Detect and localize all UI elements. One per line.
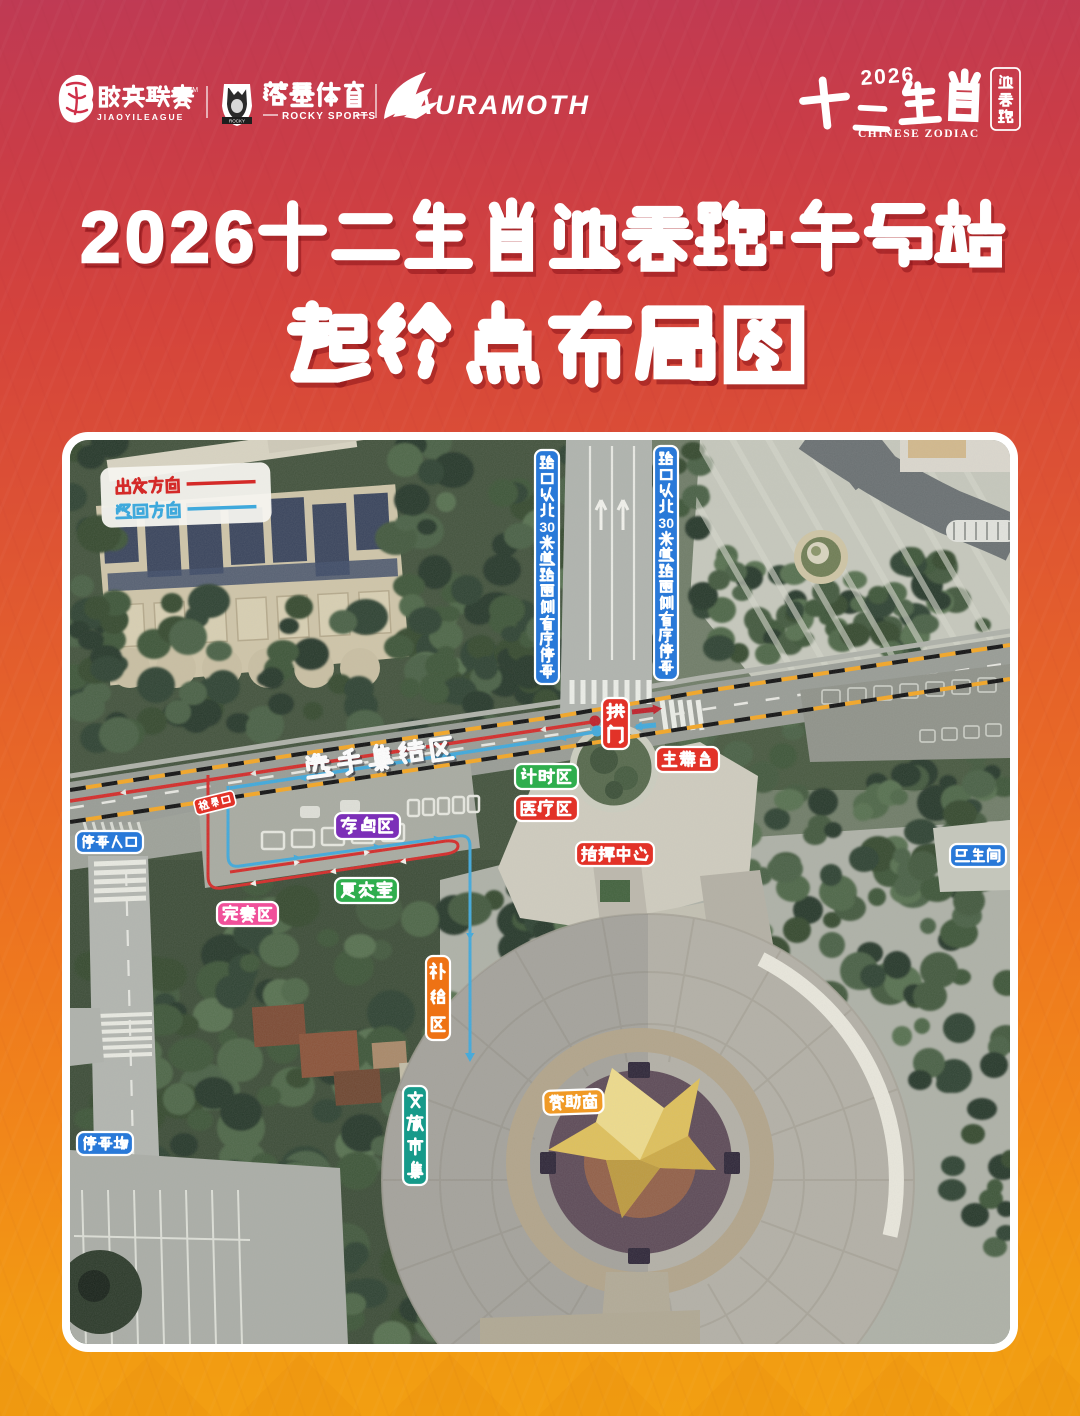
svg-text:AURAMOTH: AURAMOTH	[412, 90, 590, 120]
svg-text:JIAOYILEAGUE: JIAOYILEAGUE	[97, 112, 184, 122]
svg-text:30: 30	[658, 515, 674, 531]
svg-text:0: 0	[125, 198, 165, 278]
svg-text:TM: TM	[188, 87, 198, 94]
svg-text:ROCKY: ROCKY	[229, 119, 245, 124]
svg-text:2: 2	[80, 198, 120, 278]
svg-text:30: 30	[539, 519, 555, 535]
svg-text:2: 2	[170, 198, 210, 278]
svg-text:ROCKY SPORTS: ROCKY SPORTS	[282, 111, 376, 122]
svg-text:·: ·	[766, 198, 790, 278]
svg-text:CHINESE ZODIAC: CHINESE ZODIAC	[858, 128, 980, 140]
svg-text:6: 6	[214, 198, 254, 278]
